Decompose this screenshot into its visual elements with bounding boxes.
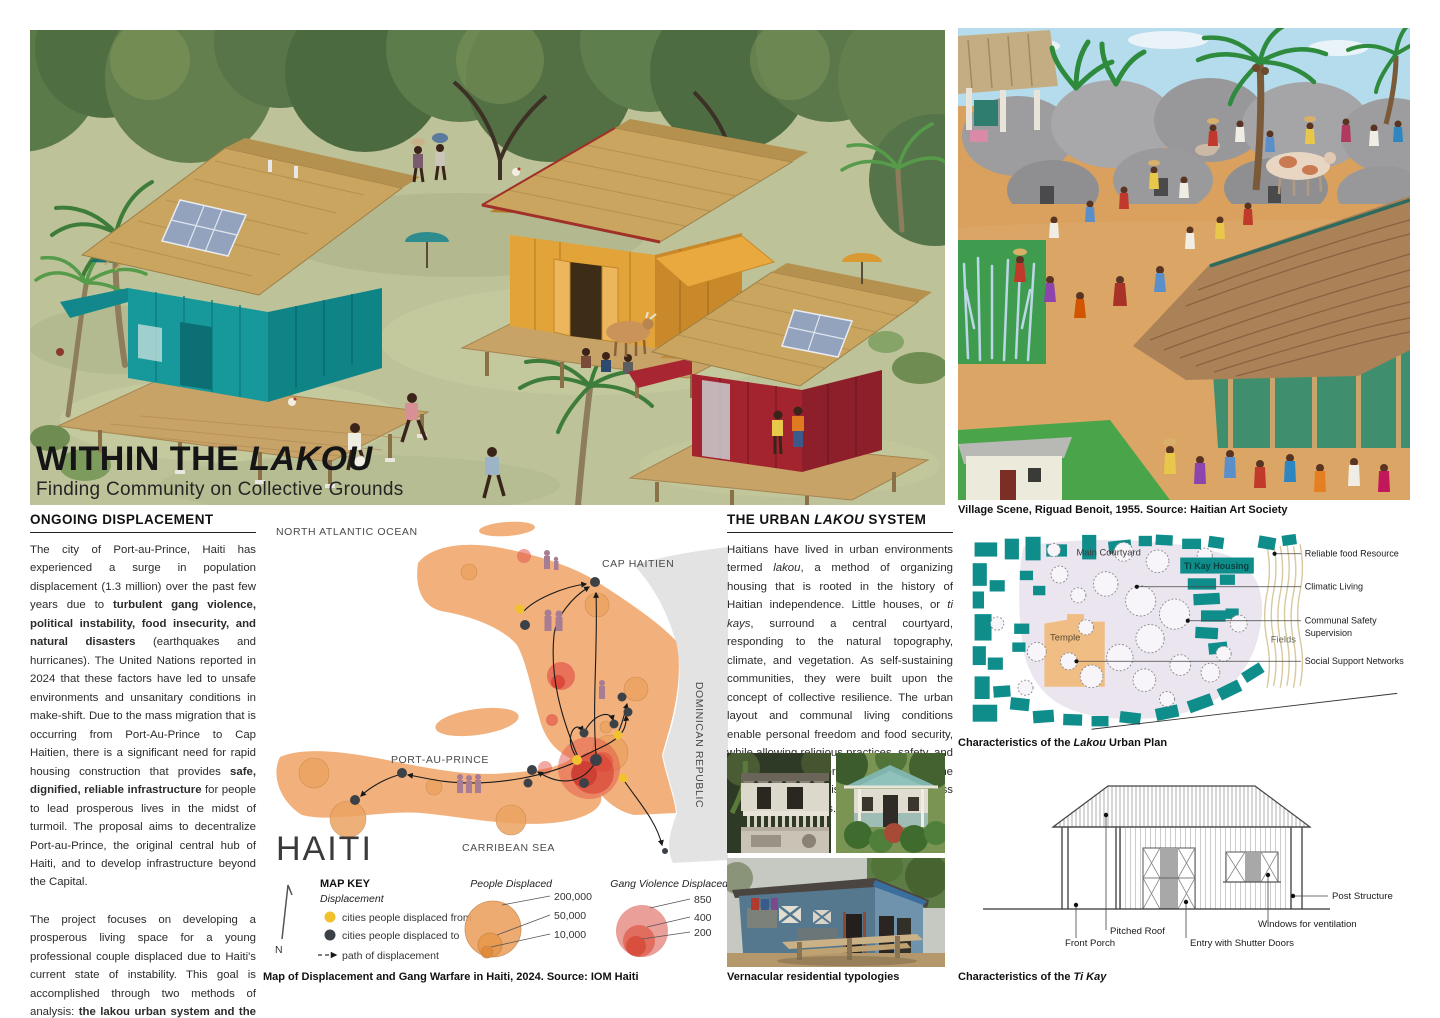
label-pitched-roof: Pitched Roof [1110,926,1165,937]
painting-caption: Village Scene, Riguad Benoit, 1955. Sour… [958,504,1410,516]
map-key-sub: Displacement [320,893,385,905]
lakou-plan-panel: Ti Kay Housing Main Courtyard Temple Fie… [958,533,1410,733]
map-key: N MAP KEY Displacement cities people dis… [275,878,728,962]
label-haiti: HAITI [276,830,373,868]
gang-value-2: 400 [694,912,712,924]
label-port-au-prince: PORT-AU-PRINCE [391,754,489,766]
label-carribean-sea: CARRIBEAN SEA [462,842,555,854]
ventilation-window [1223,852,1281,882]
mountain-huts [962,78,1410,222]
roof-shape [1053,786,1310,827]
hero-render-illustration [30,30,945,505]
annotation-social: Social Support Networks [1305,656,1405,666]
sugarcane-plants [958,240,1046,364]
ongoing-displacement-section: ONGOING DISPLACEMENT The city of Port-au… [30,512,256,1018]
label-dominican-republic: DOMINICAN REPUBLIC [693,682,705,808]
people-value-2: 50,000 [554,910,586,922]
entry-door [1143,848,1195,909]
lakou-plan-caption: Characteristics of the Lakou Urban Plan [958,737,1167,749]
tikay-elevation: Pitched Roof Front Porch Entry with Shut… [958,772,1410,964]
annotation-safety-1: Communal Safety [1305,616,1377,626]
photo-blue-shack [727,858,945,967]
label-fields: Fields [1271,633,1296,644]
people-value-3: 10,000 [554,929,586,941]
vernacular-photos [727,753,945,967]
tikay-caption: Characteristics of the Ti Kay [958,971,1106,983]
people-displaced-title: People Displaced [470,878,553,890]
ongoing-paragraph-2: The project focuses on developing a pros… [30,911,256,1018]
label-ti-kay-housing: Ti Kay Housing [1184,561,1249,571]
ongoing-heading: ONGOING DISPLACEMENT [30,512,256,533]
label-windows: Windows for ventilation [1258,919,1357,930]
ongoing-paragraph-1: The city of Port-au-Prince, Haiti has ex… [30,541,256,892]
field-lines [1265,544,1303,687]
people-value-1: 200,000 [554,891,592,903]
label-temple: Temple [1050,632,1080,643]
photo-tikay-house [836,753,945,853]
map-caption: Map of Displacement and Gang Warfare in … [263,971,639,983]
label-north-atlantic-ocean: NORTH ATLANTIC OCEAN [276,526,418,538]
label-post-structure: Post Structure [1332,891,1393,902]
label-cap-haitien: CAP HAITIEN [602,558,674,570]
lakou-urban-plan: Ti Kay Housing Main Courtyard Temple Fie… [958,533,1410,733]
gang-value-3: 200 [694,927,712,939]
poster-subtitle: Finding Community on Collective Grounds [36,479,404,501]
displacement-map: NORTH ATLANTIC OCEAN CAP HAITIEN PORT-AU… [262,515,728,967]
photo-gingerbread-house [727,753,831,853]
label-main-courtyard: Main Courtyard [1076,547,1140,558]
label-entry: Entry with Shutter Doors [1190,938,1294,949]
legend-displaced-to: cities people displaced to [342,930,459,942]
annotation-climatic: Climatic Living [1305,582,1363,592]
poster-title: WITHIN THE LAKOU [36,442,404,476]
village-painting [958,28,1410,500]
legend-displaced-from: cities people displaced from [342,912,472,924]
hero-render-panel: WITHIN THE LAKOU Finding Community on Co… [30,30,945,505]
legend-path: path of displacement [342,950,439,962]
gang-displaced-title: Gang Violence Displaced [610,878,728,890]
annotation-food: Reliable food Resource [1305,549,1399,559]
annotation-safety-2: Supervision [1305,628,1352,638]
gonave-island [434,703,521,740]
presentation-board: WITHIN THE LAKOU Finding Community on Co… [0,0,1440,1018]
tikay-panel: Pitched Roof Front Porch Entry with Shut… [958,772,1410,964]
tortuga-island [479,520,536,538]
painting-panel [958,28,1410,500]
map-key-heading: MAP KEY [320,878,371,890]
gang-value-1: 850 [694,894,712,906]
north-arrow-label: N [275,944,283,956]
label-front-porch: Front Porch [1065,938,1115,949]
vernacular-caption: Vernacular residential typologies [727,971,899,983]
haiti-map-panel: NORTH ATLANTIC OCEAN CAP HAITIEN PORT-AU… [262,515,728,967]
urban-heading: THE URBAN LAKOU SYSTEM [727,512,953,533]
hero-title-block: WITHIN THE LAKOU Finding Community on Co… [36,442,404,501]
